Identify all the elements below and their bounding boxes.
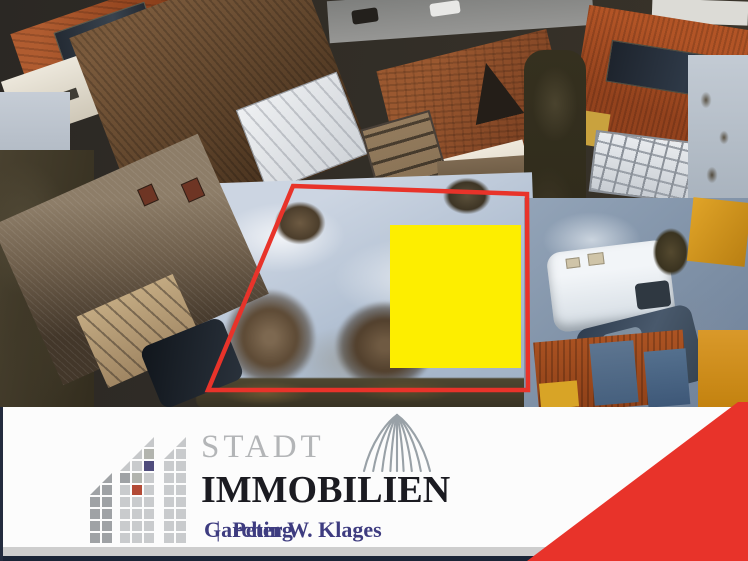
aerial-photo (0, 0, 748, 407)
logo-cell (132, 509, 142, 519)
logo-roof-cell (102, 473, 112, 483)
logo-cell (144, 521, 154, 531)
logo-cell (120, 497, 130, 507)
logo-cell (176, 449, 186, 459)
logo-cell (102, 521, 112, 531)
logo-cell (90, 509, 100, 519)
logo-cell (176, 533, 186, 543)
dome-icon (360, 412, 434, 472)
logo-cell (144, 485, 154, 495)
logo-cell (90, 533, 100, 543)
listing-image: STADT IMMOBILIEN Garching|Peter W. Klage… (0, 0, 748, 561)
logo-cell (144, 473, 154, 483)
logo-cell (164, 461, 174, 471)
logo-roof-cell (120, 461, 130, 471)
logo-cell (120, 533, 130, 543)
logo-roof-cell (144, 437, 154, 447)
logo-cell (164, 521, 174, 531)
logo-cell (90, 497, 100, 507)
logo-cell (144, 509, 154, 519)
logo-cell (102, 509, 112, 519)
logo-cell (120, 473, 130, 483)
logo-cell (132, 473, 142, 483)
banner-left-edge (0, 407, 3, 561)
logo-cell (102, 485, 112, 495)
logo-cell (132, 485, 142, 495)
logo-cell (102, 533, 112, 543)
logo-cell (176, 521, 186, 531)
logo-cell (144, 449, 154, 459)
logo-roof-cell (132, 449, 142, 459)
logo-cell (120, 509, 130, 519)
brand-tagline: Garching|Peter W. Klages (204, 519, 232, 541)
logo-cell (176, 485, 186, 495)
plot-boundary-overlay (0, 0, 748, 407)
logo-cell (120, 485, 130, 495)
logo-cell (176, 497, 186, 507)
logo-cell (164, 497, 174, 507)
logo-cell (144, 497, 154, 507)
logo-cell (120, 521, 130, 531)
pixel-building-logo (90, 437, 186, 543)
logo-roof-cell (176, 437, 186, 447)
logo-cell (132, 461, 142, 471)
logo-cell (164, 509, 174, 519)
logo-cell (164, 473, 174, 483)
logo-cell (176, 473, 186, 483)
logo-roof-cell (90, 485, 100, 495)
brand-title: STADT (201, 431, 325, 464)
logo-cell (176, 461, 186, 471)
logo-cell (102, 497, 112, 507)
logo-cell (90, 521, 100, 531)
logo-cell (176, 509, 186, 519)
logo-cell (144, 533, 154, 543)
tagline-name: Peter W. Klages (232, 519, 381, 541)
logo-roof-cell (164, 449, 174, 459)
logo-cell (132, 533, 142, 543)
brand-subtitle: IMMOBILIEN (201, 471, 450, 509)
plot-boundary (208, 186, 528, 390)
logo-cell (164, 485, 174, 495)
logo-cell (144, 461, 154, 471)
logo-cell (164, 533, 174, 543)
logo-cell (132, 497, 142, 507)
logo-cell (132, 521, 142, 531)
